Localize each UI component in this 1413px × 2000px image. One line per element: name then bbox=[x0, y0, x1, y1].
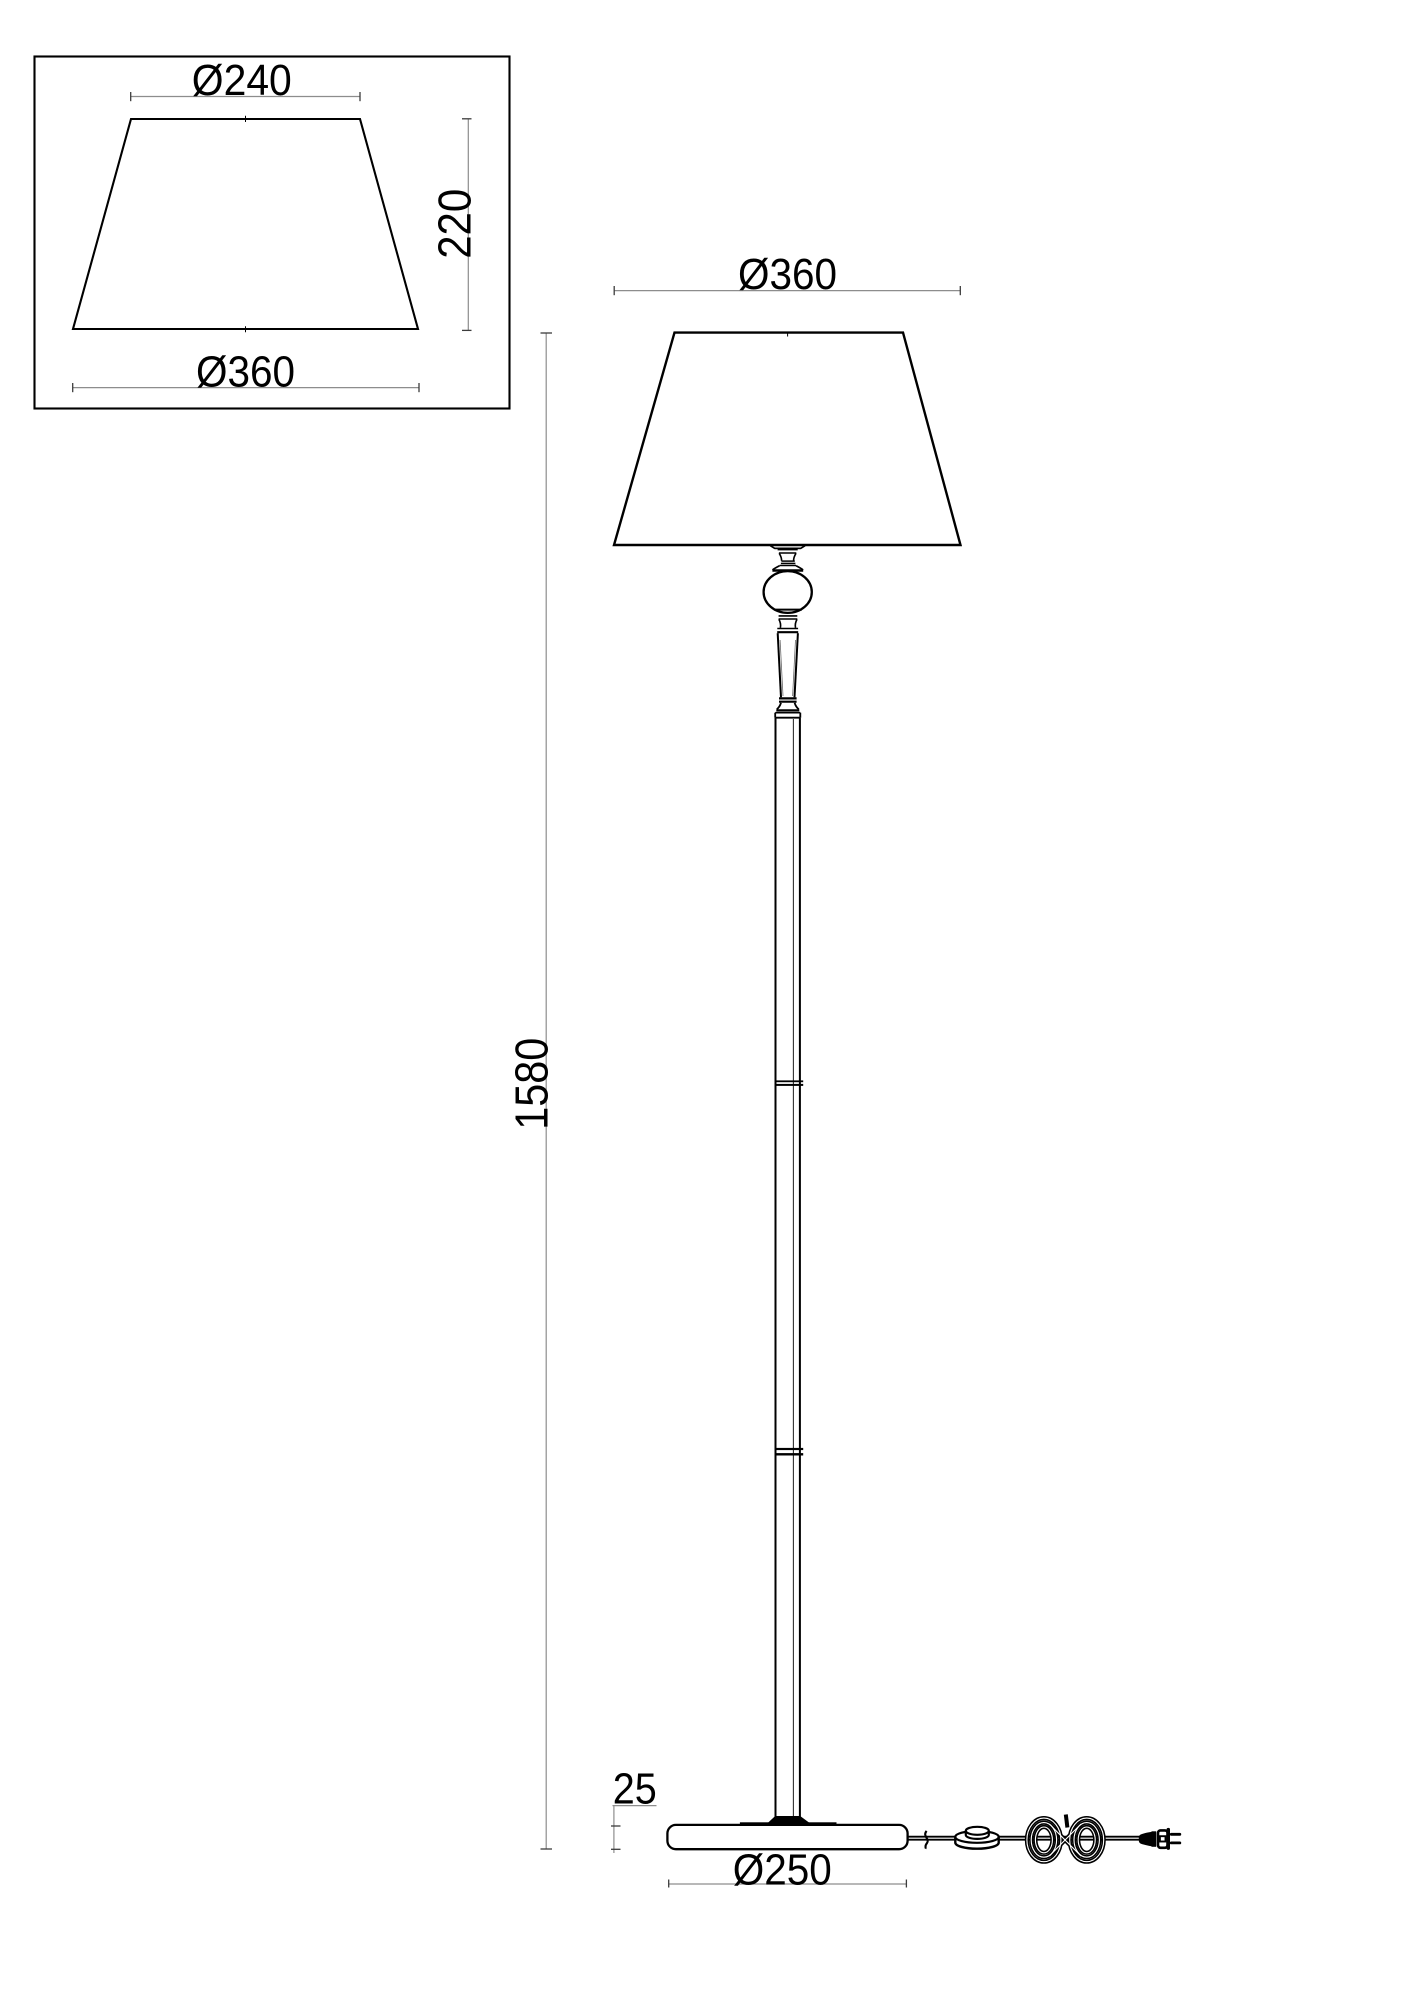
svg-text:Ø360: Ø360 bbox=[196, 347, 295, 396]
svg-text:Ø250: Ø250 bbox=[733, 1845, 832, 1894]
svg-text:Ø240: Ø240 bbox=[192, 56, 292, 105]
svg-text:220: 220 bbox=[428, 189, 480, 259]
svg-text:Ø360: Ø360 bbox=[738, 250, 837, 299]
svg-text:1580: 1580 bbox=[506, 1038, 558, 1130]
